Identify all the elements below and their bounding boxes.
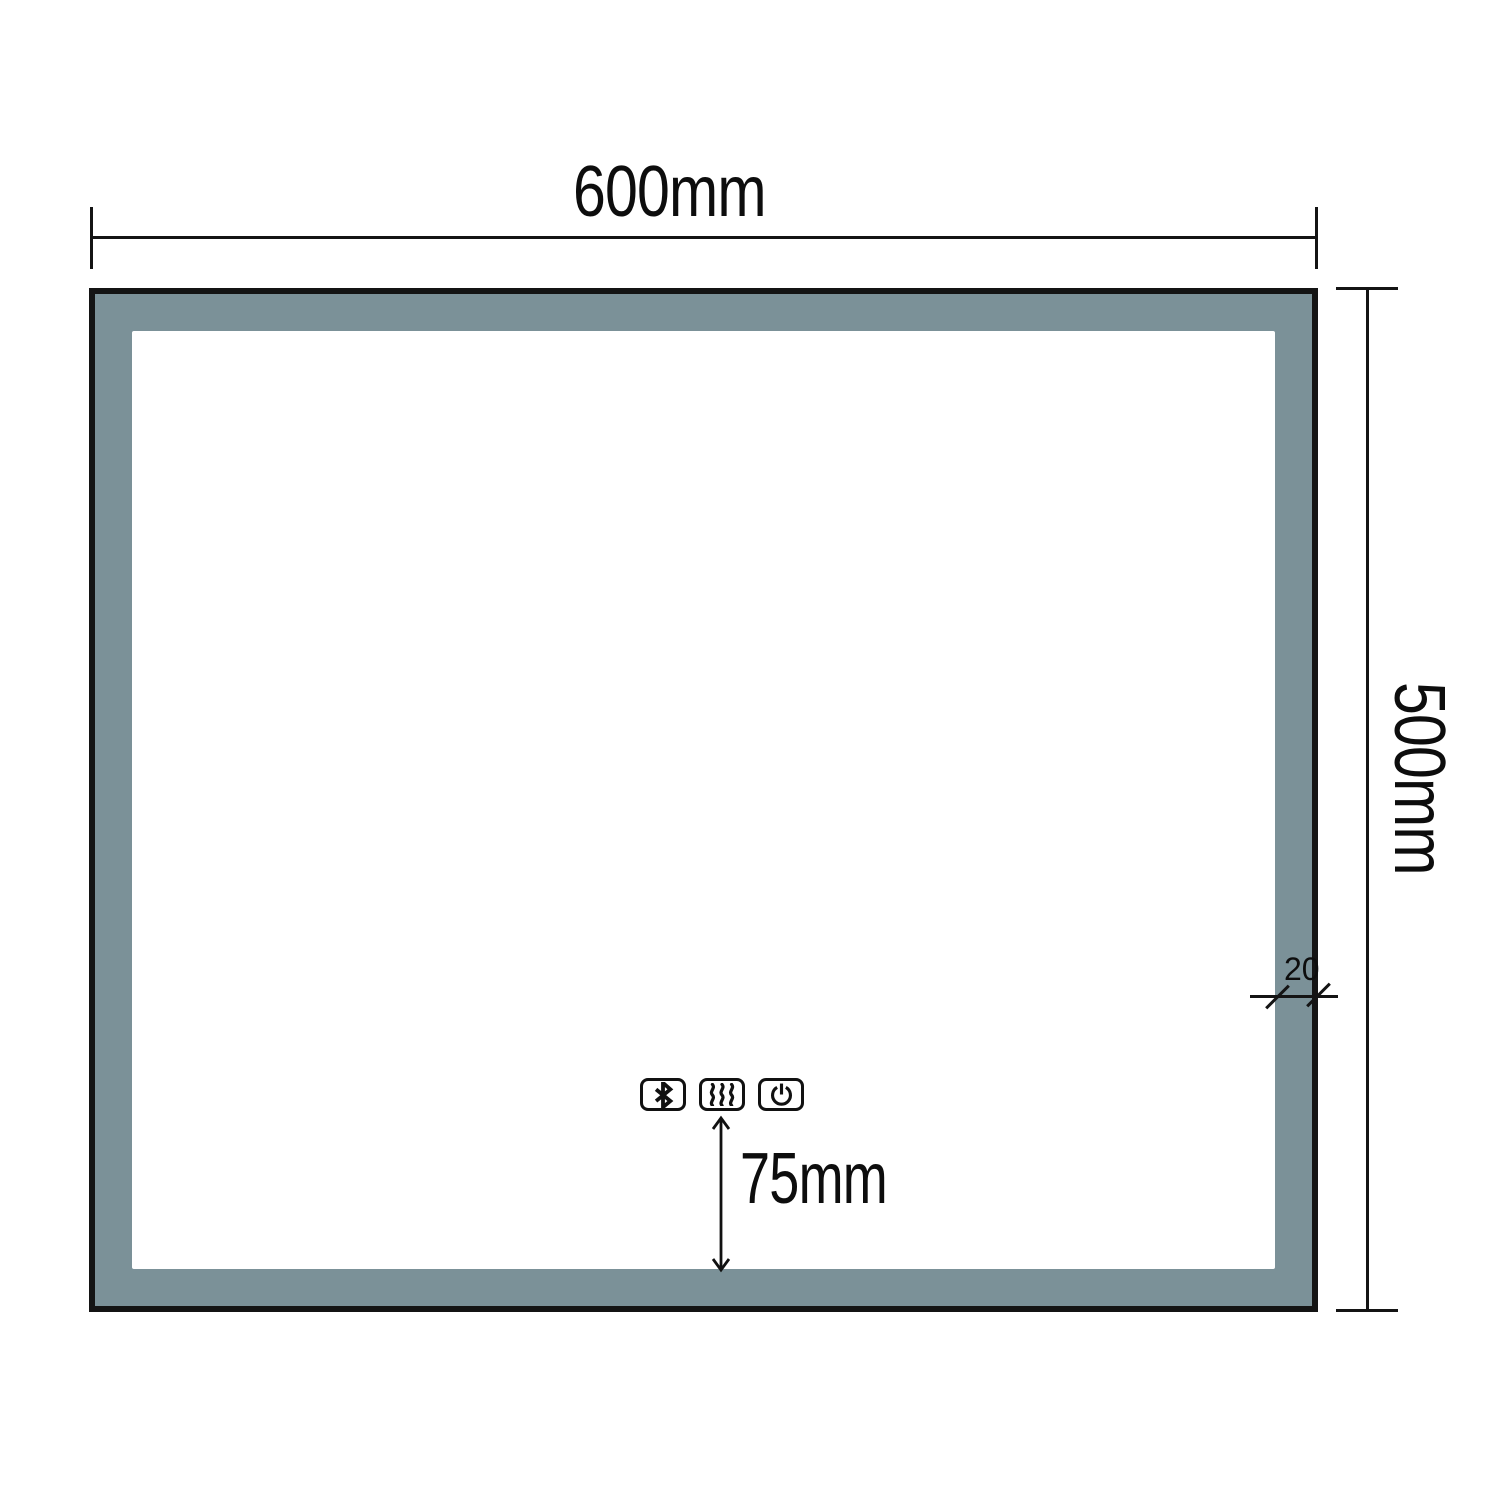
power-button[interactable] [758,1078,804,1111]
width-dimension-line [92,236,1318,239]
mirror-glass [132,331,1275,1269]
width-dimension-label: 600mm [573,156,766,228]
frame-thickness-line [1250,995,1338,998]
width-dimension-tick-left [90,207,93,269]
bluetooth-button[interactable] [640,1078,686,1111]
height-dimension-label: 500mm [1383,682,1455,875]
power-icon [769,1082,794,1107]
width-dimension-tick-right [1315,207,1318,269]
defog-button[interactable] [699,1078,745,1111]
controls-offset-label: 75mm [740,1143,887,1215]
dimension-diagram: 600mm 500mm 20 [0,0,1500,1500]
height-dimension-tick-bottom [1336,1309,1398,1312]
frame-thickness-label: 20 [1284,953,1320,985]
touch-controls [640,1078,804,1111]
bluetooth-icon [651,1082,675,1108]
mirror-frame [89,288,1318,1312]
defog-icon [707,1083,737,1106]
controls-offset-arrow [706,1112,736,1276]
height-dimension-tick-top [1336,287,1398,290]
height-dimension-line [1366,289,1369,1311]
